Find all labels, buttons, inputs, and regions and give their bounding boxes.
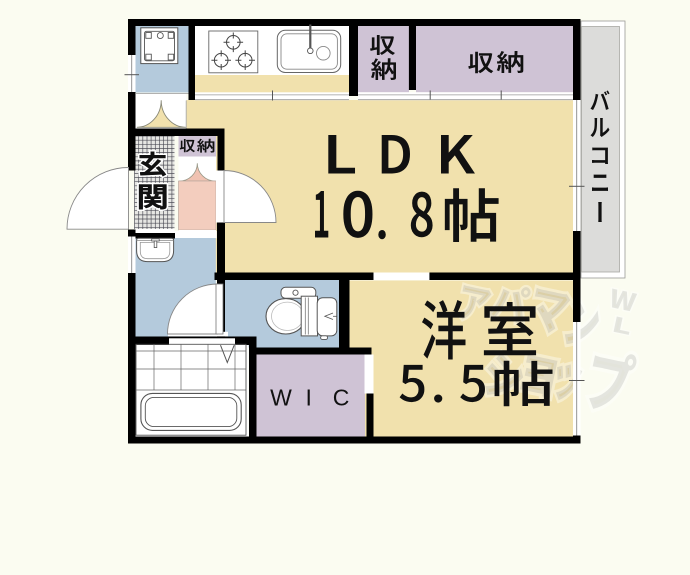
svg-text:I: I bbox=[306, 385, 312, 411]
svg-text:W: W bbox=[270, 385, 292, 411]
svg-text:C: C bbox=[333, 385, 350, 411]
